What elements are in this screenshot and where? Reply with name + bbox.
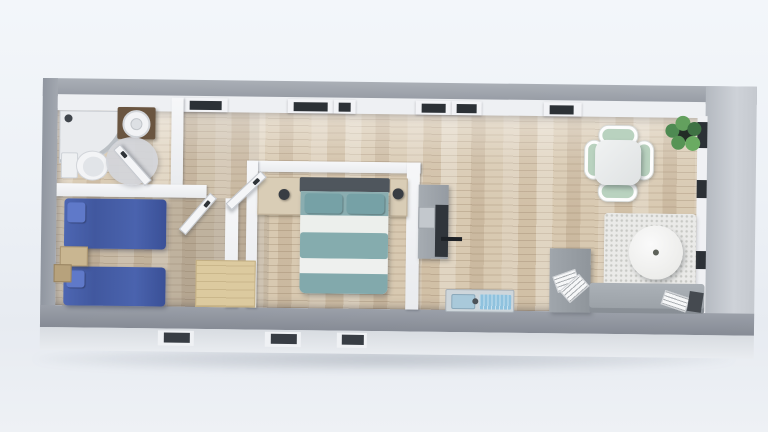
- kitchen-appliance: [418, 207, 435, 229]
- toilet-seat: [83, 156, 104, 176]
- wooden-steps: [195, 260, 256, 308]
- cooktop: [435, 205, 449, 257]
- kitchen-sink: [445, 289, 514, 313]
- door-handle: [252, 178, 260, 186]
- duvet-stripe-white: [300, 258, 388, 274]
- dark-object: [687, 291, 704, 313]
- window-facade-1: [164, 332, 190, 342]
- pillow-right: [346, 194, 384, 214]
- window-top-4: [422, 104, 446, 113]
- plant-leaf: [671, 136, 685, 150]
- oven-handle: [441, 237, 462, 241]
- duvet-stripe-teal: [300, 232, 388, 259]
- duvet-stripe-teal: [299, 273, 387, 294]
- lamp-right: [393, 188, 404, 199]
- side-table: [54, 264, 72, 282]
- window-top-3: [339, 103, 351, 112]
- dining-table: [595, 140, 642, 186]
- twin-bed-1: [64, 198, 167, 249]
- window-top-6: [550, 105, 574, 114]
- window-facade-2: [271, 334, 297, 344]
- window-right-3: [696, 251, 706, 269]
- toilet: [76, 150, 109, 180]
- twin-bed-2: [63, 266, 165, 306]
- sink-drainboard: [479, 294, 511, 309]
- master-bed: [299, 191, 388, 294]
- lamp-left: [279, 189, 290, 200]
- pillow-left: [304, 193, 342, 213]
- exterior-wall-right: [703, 86, 757, 336]
- duvet-stripe-white: [300, 215, 388, 233]
- window-top-5: [457, 104, 477, 113]
- door-handle: [120, 151, 128, 159]
- window-top-2: [294, 102, 328, 111]
- shower-head-icon: [64, 114, 72, 122]
- faucet: [472, 298, 478, 304]
- chair-seat: [602, 185, 634, 198]
- potted-plant: [663, 114, 708, 159]
- pillow: [67, 202, 85, 222]
- building: [40, 78, 757, 361]
- floorplan-render: [0, 0, 768, 432]
- window-right-2: [697, 180, 707, 198]
- plant-leaf: [687, 122, 701, 136]
- sink-drain: [130, 118, 142, 130]
- table-center-detail: [653, 249, 659, 255]
- plant-leaf: [685, 136, 700, 151]
- window-facade-3: [342, 335, 364, 345]
